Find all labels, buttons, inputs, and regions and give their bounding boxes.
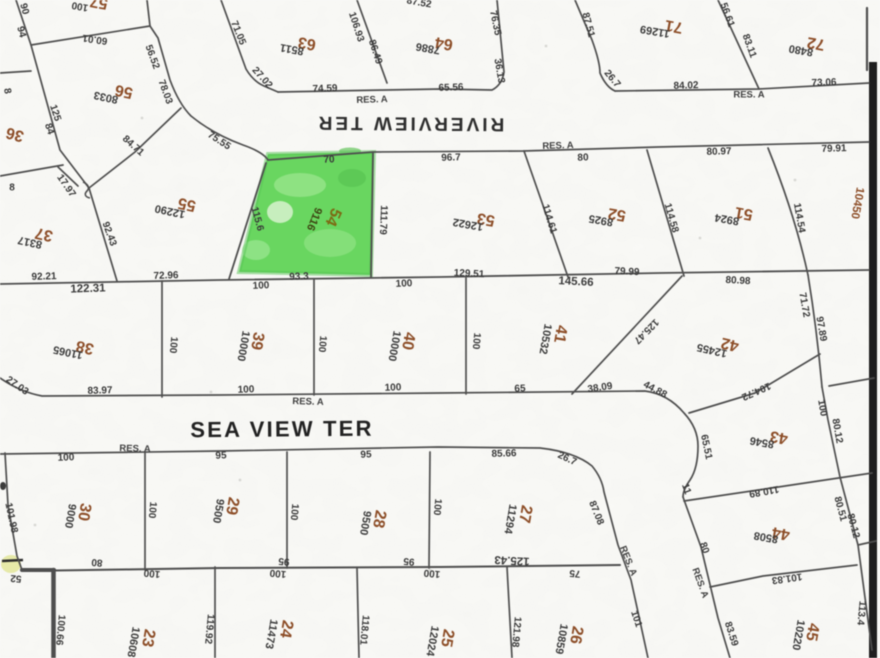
svg-text:100: 100 [57,452,74,464]
svg-text:RES. A: RES. A [119,443,151,455]
svg-text:80: 80 [577,152,589,163]
svg-text:85.66: 85.66 [491,448,517,460]
svg-text:52: 52 [10,572,22,584]
svg-text:113.4: 113.4 [854,600,867,626]
svg-text:93.3: 93.3 [289,271,309,283]
svg-text:100: 100 [146,501,158,519]
svg-text:100: 100 [316,335,328,353]
svg-text:95: 95 [360,449,372,460]
svg-text:72.96: 72.96 [153,270,179,282]
svg-text:73.06: 73.06 [811,77,837,89]
svg-text:100: 100 [252,280,270,292]
svg-text:RES. A: RES. A [292,396,324,408]
svg-text:100: 100 [431,498,443,516]
svg-text:92.21: 92.21 [31,271,57,283]
svg-text:80.97: 80.97 [706,146,732,158]
svg-text:79.91: 79.91 [821,143,847,155]
svg-text:100: 100 [237,384,254,396]
svg-text:100: 100 [395,278,413,290]
svg-text:95: 95 [403,555,415,567]
svg-text:74.59: 74.59 [312,83,338,95]
svg-text:122.31: 122.31 [70,282,106,295]
svg-text:100: 100 [167,336,179,354]
svg-text:65.56: 65.56 [438,82,464,94]
svg-text:79.99: 79.99 [614,266,640,278]
svg-text:100: 100 [470,332,482,350]
svg-text:SEA VIEW TER: SEA VIEW TER [190,416,373,443]
svg-text:80.98: 80.98 [725,275,751,287]
svg-text:80: 80 [91,556,103,568]
svg-text:RES. A: RES. A [542,140,574,152]
svg-text:125.43: 125.43 [494,553,530,567]
svg-text:96.7: 96.7 [441,152,461,164]
svg-text:145.66: 145.66 [558,275,594,289]
svg-text:111.79: 111.79 [377,205,389,235]
svg-text:129.51: 129.51 [453,268,485,281]
svg-text:100: 100 [288,503,300,521]
svg-text:RES. A: RES. A [733,90,764,101]
svg-text:100: 100 [384,382,401,394]
svg-text:95: 95 [215,450,227,461]
svg-text:65: 65 [514,383,526,394]
svg-text:84.02: 84.02 [673,80,699,92]
svg-text:70: 70 [323,154,335,166]
svg-text:100: 100 [269,567,287,579]
svg-text:100: 100 [423,567,441,579]
svg-text:100: 100 [70,0,89,13]
svg-text:95: 95 [278,555,290,567]
svg-text:83.97: 83.97 [87,385,113,397]
svg-text:100: 100 [143,567,161,579]
svg-text:75: 75 [569,567,581,579]
svg-text:RES. A: RES. A [356,94,388,106]
svg-text:8: 8 [9,183,15,194]
svg-text:57: 57 [89,0,110,12]
svg-text:RIVERVIEW TER: RIVERVIEW TER [316,112,505,135]
